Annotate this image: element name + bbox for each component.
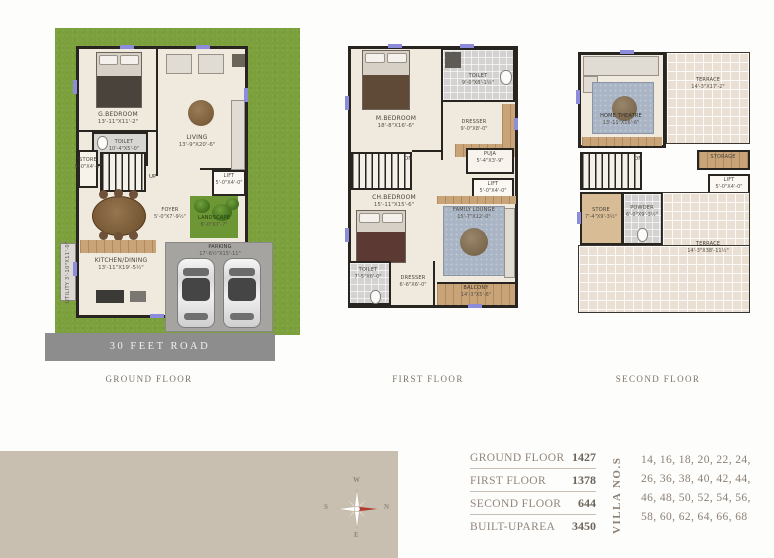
- area-table: GROUND FLOOR 1427 FIRST FLOOR 1378 SECON…: [470, 446, 596, 537]
- windshield: [229, 268, 255, 276]
- toilet-icon: [370, 290, 381, 304]
- chair-icon: [114, 189, 123, 198]
- compass-w: W: [353, 476, 360, 484]
- car-icon: [177, 258, 215, 328]
- dining-table-icon: [92, 196, 146, 236]
- room-toilet2-ff-label: TOILET 7'-5"X6'-0": [354, 268, 381, 280]
- window-icon: [514, 118, 518, 130]
- wall: [412, 150, 443, 152]
- rear-window: [184, 313, 208, 320]
- toilet-icon: [97, 136, 108, 150]
- window-icon: [345, 228, 349, 242]
- window-icon: [73, 80, 77, 94]
- room-foyer-label: FOYER 5'-0"X7'-9½": [154, 208, 186, 220]
- area-row-value: 1378: [572, 473, 596, 488]
- bed-icon: [96, 52, 142, 108]
- room-theatre-label: HOME THEATRE 13'-11"X16'-6": [600, 114, 642, 126]
- area-row-label: FIRST FLOOR: [470, 475, 546, 487]
- room-gbedroom-label: G.BEDROOM 13'-11"X11'-2": [98, 112, 138, 125]
- stairs-dn-label: DN: [404, 156, 412, 162]
- windshield: [183, 268, 209, 276]
- room-toilet-gf-label: TOILET 10'-4"X5'-0": [109, 140, 139, 152]
- armchair-icon: [166, 54, 192, 74]
- window-icon: [150, 314, 164, 318]
- table-row: FIRST FLOOR 1378: [470, 469, 596, 492]
- room-dresser2-ff-label: DRESSER 6'-6"X6'-0": [399, 276, 426, 288]
- table-row: BUILT-UPAREA 3450: [470, 515, 596, 537]
- compass-e: E: [354, 531, 359, 539]
- caption-second-floor: SECOND FLOOR: [598, 374, 718, 384]
- villa-numbers-line: 46, 48, 50, 52, 54, 56,: [641, 489, 769, 508]
- table-row: SECOND FLOOR 644: [470, 492, 596, 515]
- car-icon: [223, 258, 261, 328]
- pillow-icon: [120, 55, 139, 65]
- chair-icon: [129, 231, 138, 240]
- sofa-icon: [231, 100, 245, 170]
- window-icon: [345, 96, 349, 110]
- table-row: GROUND FLOOR 1427: [470, 446, 596, 469]
- bed-icon: [362, 50, 410, 110]
- room-lift-ff-label: LIFT 5'-0"X4'-0": [479, 182, 506, 194]
- window-icon: [576, 90, 580, 104]
- staircase-icon: [350, 152, 412, 190]
- room-dresser1-ff-label: DRESSER 9'-0"X8'-0": [460, 120, 487, 132]
- sofa-icon: [504, 208, 515, 278]
- car-roof: [228, 278, 256, 301]
- area-row-label: GROUND FLOOR: [470, 452, 565, 464]
- toilet-icon: [500, 70, 512, 85]
- room-lift-gf-label: LIFT 5'-0"X4'-0": [215, 174, 242, 186]
- room-lounge-label: FAMILY LOUNGE 15'-7"X12'-0": [453, 208, 495, 220]
- villa-numbers-list: 14, 16, 18, 20, 22, 24, 26, 36, 38, 40, …: [641, 451, 769, 527]
- room-mbedroom-label: M.BEDROOM 18'-8"X16'-6": [376, 116, 416, 129]
- pillow-icon: [387, 53, 406, 63]
- area-row-value: 3450: [572, 519, 596, 534]
- room-toilet1-ff-label: TOILET 9'-0"X8'-1½": [462, 74, 494, 86]
- stove-icon: [96, 290, 124, 303]
- room-kitchen-label: KITCHEN/DINING 13'-11"X19'-5½": [95, 258, 148, 271]
- window-icon: [388, 44, 402, 48]
- window-icon: [620, 50, 634, 54]
- car-roof: [182, 278, 210, 301]
- villa-numbers-line: 26, 36, 38, 40, 42, 44,: [641, 470, 769, 489]
- stairs-dn-label: DN: [634, 156, 642, 162]
- sink-icon: [130, 291, 146, 302]
- pillow-icon: [359, 213, 379, 223]
- room-balcony-label: BALCONY 14'-3"X5'-6": [461, 286, 491, 298]
- room-lift-sf-label: LIFT 5'-0"X4'-0": [715, 178, 742, 190]
- room-landscape-label: LANDSCAPE 8'-0"X7'-7": [198, 216, 230, 228]
- chair-icon: [99, 231, 108, 240]
- theatre-wood-edge: [582, 137, 662, 146]
- caption-ground-floor: GROUND FLOOR: [89, 374, 209, 384]
- side-table-icon: [232, 54, 245, 67]
- room-terrace-bottom-label: TERRACE 14'-3"X38'-11½": [687, 242, 729, 254]
- wall: [156, 48, 158, 176]
- staircase-icon: [580, 152, 642, 190]
- area-row-value: 1427: [572, 450, 596, 465]
- chair-icon: [99, 190, 108, 199]
- brand-panel: EAST FACING VILLAS 212 SQ.YDS W N S E: [0, 451, 398, 558]
- window-icon: [196, 45, 210, 49]
- room-store-sf-label: STORE 7'-4"X9'-3½": [585, 208, 617, 220]
- room-terrace-bottom-arm: [662, 192, 750, 247]
- room-terrace-top: [666, 52, 750, 144]
- rear-window: [230, 313, 254, 320]
- bush-icon: [194, 199, 210, 213]
- pillow-icon: [99, 55, 118, 65]
- area-row-value: 644: [578, 496, 596, 511]
- blanket: [97, 76, 141, 107]
- window-icon: [577, 212, 581, 224]
- road-strip: 30 FEET ROAD: [45, 333, 275, 361]
- room-puja-label: PUJA 5'-4"X3'-9": [476, 152, 503, 164]
- area-row-label: BUILT-UPAREA: [470, 521, 555, 533]
- room-terrace-top-label: TERRACE 14'-3"X17'-2": [691, 78, 724, 90]
- window-icon: [73, 262, 77, 276]
- kitchen-counter-icon: [80, 240, 156, 253]
- wall: [433, 261, 435, 305]
- window-icon: [468, 304, 482, 308]
- bush-icon: [226, 198, 239, 210]
- shower-icon: [445, 52, 461, 68]
- lounge-wood-edge: [437, 196, 516, 204]
- window-icon: [120, 45, 134, 49]
- stairs-up-label: UP: [149, 174, 156, 180]
- armchair-icon: [198, 54, 224, 74]
- sofa-icon: [583, 56, 659, 76]
- room-terrace-bottom: [578, 245, 750, 313]
- area-row-label: SECOND FLOOR: [470, 498, 561, 510]
- road-label: 30 FEET ROAD: [45, 333, 275, 361]
- room-parking-label: PARKING 17'-6½"X15'-11": [199, 245, 241, 257]
- room-storage-label: STORAGE: [710, 155, 735, 161]
- coffee-table-icon: [188, 100, 214, 126]
- window-icon: [460, 44, 474, 48]
- room-store-gf-label: STORE 5'-0"X4'-0": [74, 158, 101, 170]
- blanket: [357, 232, 405, 262]
- villa-numbers-line: 14, 16, 18, 20, 22, 24,: [641, 451, 769, 470]
- blanket: [363, 75, 409, 109]
- compass-n: N: [384, 503, 389, 511]
- toilet-icon: [637, 228, 648, 242]
- pillow-icon: [365, 53, 384, 63]
- chair-icon: [129, 190, 138, 199]
- villa-numbers-label: VILLA NO.S: [611, 456, 625, 534]
- compass-rose-icon: [335, 487, 379, 531]
- compass-s: S: [324, 503, 328, 511]
- room-living-label: LIVING 13'-9"X20'-6": [179, 135, 216, 148]
- room-powder-label: POWDER 6'-0"X9'-3½": [626, 206, 658, 218]
- window-icon: [244, 88, 248, 102]
- pillow-icon: [382, 213, 402, 223]
- ottoman-icon: [460, 228, 488, 256]
- villa-numbers-line: 58, 60, 62, 64, 66, 68: [641, 508, 769, 527]
- staircase-icon: [100, 152, 146, 192]
- floorplan-brochure: G.BEDROOM 13'-11"X11'-2" LIVING 13'-9"X2…: [0, 0, 774, 558]
- room-chbedroom-label: CH.BEDROOM 15'-11"X15'-6": [372, 195, 416, 208]
- caption-first-floor: FIRST FLOOR: [368, 374, 488, 384]
- bed-icon: [356, 210, 406, 263]
